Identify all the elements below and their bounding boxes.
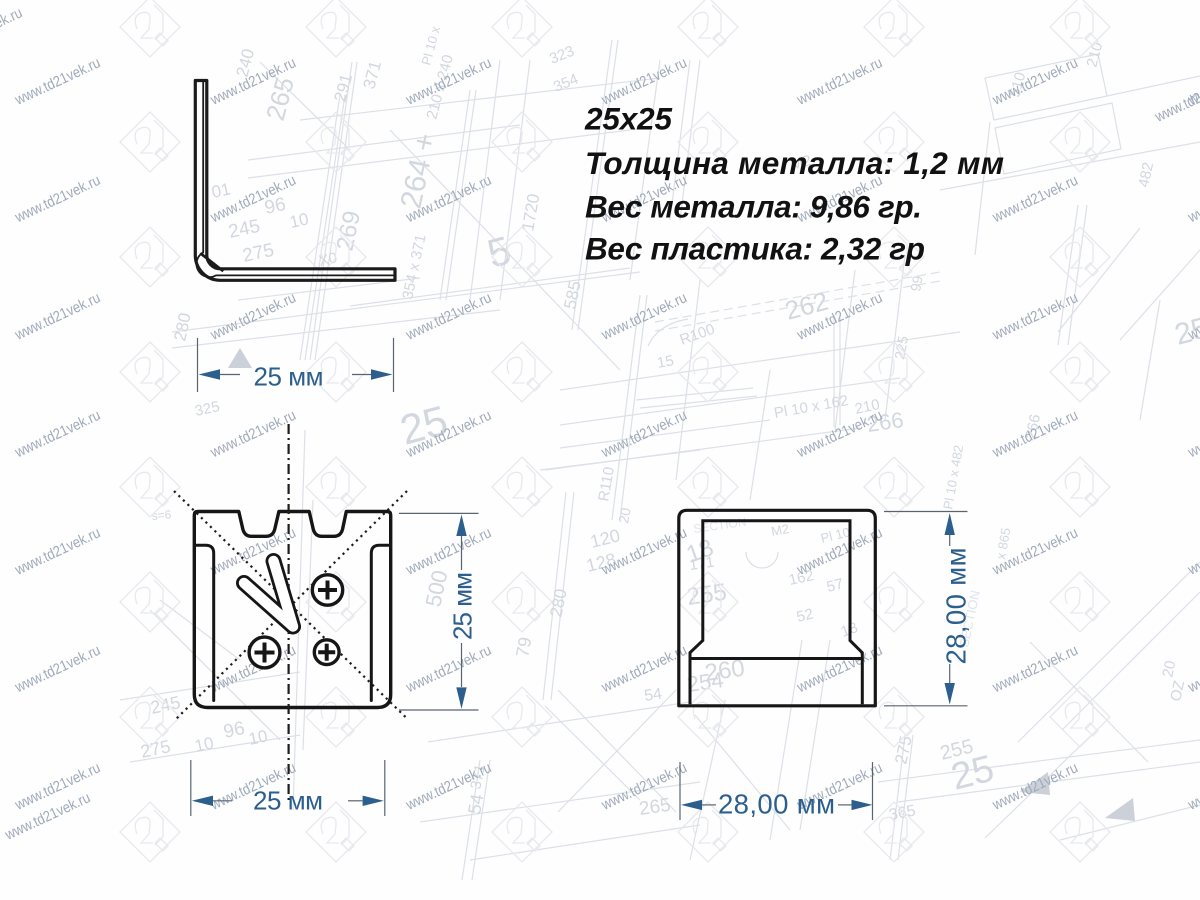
svg-text:01: 01 xyxy=(210,179,232,202)
svg-text:28,00 мм: 28,00 мм xyxy=(718,789,835,820)
svg-text:54: 54 xyxy=(643,686,663,705)
svg-text:M2: M2 xyxy=(770,521,790,539)
svg-text:79: 79 xyxy=(512,635,535,658)
svg-text:Вес металла: 9,86 гр.: Вес металла: 9,86 гр. xyxy=(585,189,922,225)
svg-text:96: 96 xyxy=(222,718,247,743)
svg-text:25x25: 25x25 xyxy=(584,101,672,137)
svg-text:15: 15 xyxy=(656,352,675,372)
svg-text:Толщина металла: 1,2 мм: Толщина металла: 1,2 мм xyxy=(585,145,1004,181)
svg-text:10: 10 xyxy=(288,209,310,232)
svg-text:25 мм: 25 мм xyxy=(448,572,478,640)
svg-text:20: 20 xyxy=(615,506,633,524)
svg-text:25 мм: 25 мм xyxy=(254,361,324,391)
svg-text:28,00 мм: 28,00 мм xyxy=(941,548,972,665)
svg-text:99: 99 xyxy=(907,274,925,292)
svg-text:25 мм: 25 мм xyxy=(253,786,323,816)
svg-text:54: 54 xyxy=(464,792,487,815)
svg-text:10: 10 xyxy=(247,726,269,749)
svg-text:Вес пластика: 2,32 гр: Вес пластика: 2,32 гр xyxy=(585,231,925,267)
svg-text:265: 265 xyxy=(638,795,672,820)
svg-text:10: 10 xyxy=(193,733,215,756)
svg-text:s=6: s=6 xyxy=(151,507,172,523)
svg-text:20: 20 xyxy=(1159,659,1179,679)
svg-text:255: 255 xyxy=(685,579,728,611)
